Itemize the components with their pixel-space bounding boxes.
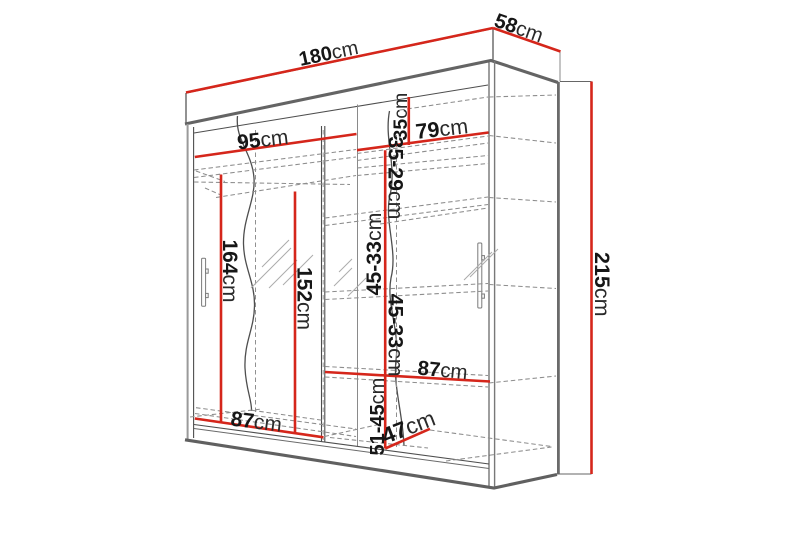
svg-text:164cm: 164cm	[218, 240, 241, 303]
svg-text:215cm: 215cm	[590, 252, 614, 317]
svg-text:152cm: 152cm	[293, 267, 316, 330]
svg-text:45-33cm: 45-33cm	[362, 213, 386, 296]
svg-text:35cm: 35cm	[390, 93, 412, 141]
svg-text:35-29cm: 35-29cm	[383, 137, 407, 220]
svg-text:87cm: 87cm	[417, 357, 469, 385]
svg-text:45-33cm: 45-33cm	[383, 294, 407, 377]
